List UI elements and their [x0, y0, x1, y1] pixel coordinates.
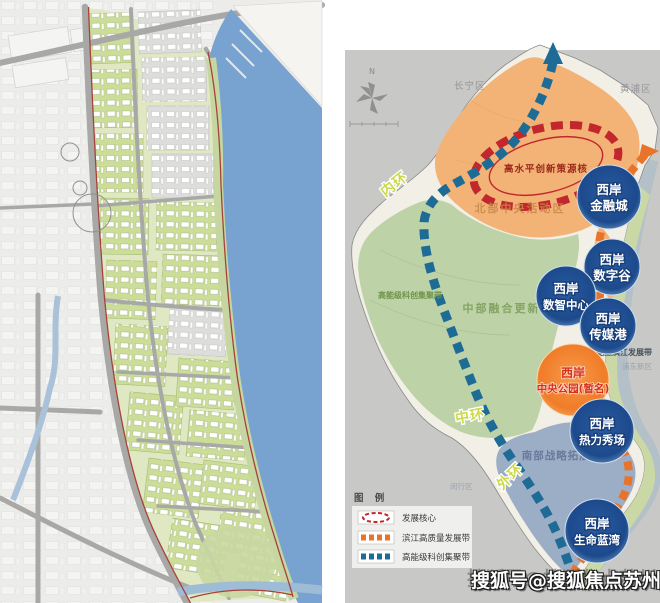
node-life-blue-bay: 西岸 生命蓝湾 [565, 499, 629, 563]
node-label: 西岸 [596, 182, 622, 197]
node-label: 西岸 [553, 281, 579, 296]
node-media-port: 西岸 传媒港 [580, 298, 636, 354]
legend-label: 滨江高质量发展带 [402, 533, 471, 544]
maps-canvas: N 长宁区 黄浦区 浦东新区 闵行区 高水平创新策源核 北部中央活动区 中部融合… [0, 0, 660, 603]
right-strategy-map: N 长宁区 黄浦区 浦东新区 闵行区 高水平创新策源核 北部中央活动区 中部融合… [345, 42, 660, 603]
legend-title: 图 例 [354, 492, 388, 504]
node-label: 西岸 [589, 416, 615, 431]
district-label-huangpu: 黄浦区 [620, 83, 652, 95]
node-label: 数智中心 [543, 298, 589, 312]
node-label: 金融城 [589, 198, 628, 213]
district-label-minhang: 闵行区 [450, 481, 473, 491]
node-label: 传媒港 [588, 327, 627, 342]
node-label: 数字谷 [592, 268, 631, 283]
node-financial-city: 西岸 金融城 [577, 165, 641, 229]
core-label: 高水平创新策源核 [504, 163, 588, 175]
node-label: 西岸 [561, 365, 585, 380]
compass-north-label: N [369, 67, 375, 76]
node-label: 西岸 [595, 311, 621, 326]
node-label: 中央公园(暂名) [537, 382, 610, 395]
district-label-pudong: 浦东新区 [622, 361, 652, 371]
node-label: 热力秀场 [579, 433, 625, 447]
watermark-text: 搜狐号@搜狐焦点苏州站 [471, 566, 660, 598]
north-zone-label: 北部中央活动区 [475, 201, 566, 215]
node-label: 西岸 [584, 516, 610, 531]
sci-tech-belt-label: 高能级科创集聚带 [378, 290, 442, 300]
left-master-plan-map [0, 0, 322, 603]
node-label: 西岸 [599, 252, 625, 267]
node-label: 生命蓝湾 [574, 533, 620, 547]
planning-maps-figure: N 长宁区 黄浦区 浦东新区 闵行区 高水平创新策源核 北部中央活动区 中部融合… [0, 0, 660, 603]
legend-label: 高能级科创集聚带 [402, 552, 471, 563]
node-vitality-show-field: 西岸 热力秀场 [570, 399, 634, 463]
district-label-changning: 长宁区 [454, 80, 486, 92]
legend-label: 发展核心 [402, 513, 437, 524]
